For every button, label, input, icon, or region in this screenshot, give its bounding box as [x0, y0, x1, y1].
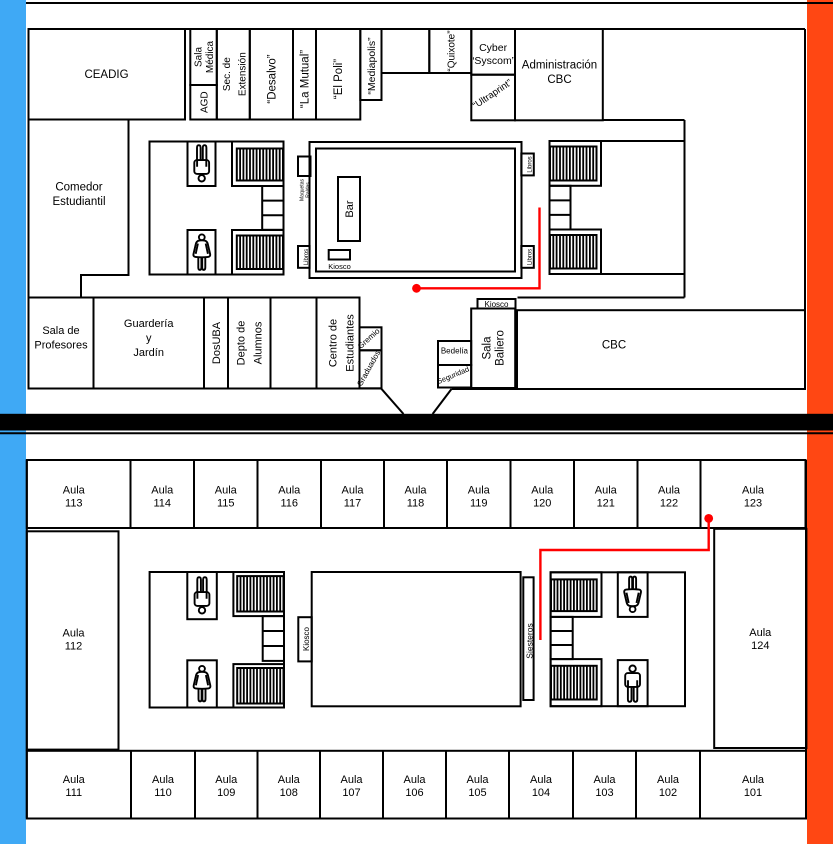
svg-text:“Syscom”: “Syscom”	[471, 55, 516, 67]
svg-text:104: 104	[532, 787, 550, 799]
svg-text:Aula: Aula	[657, 774, 680, 786]
svg-text:Estudiantes: Estudiantes	[345, 314, 357, 372]
svg-text:Aula: Aula	[63, 774, 86, 786]
svg-text:CBC: CBC	[547, 74, 571, 86]
svg-text:108: 108	[280, 787, 298, 799]
svg-text:Aula: Aula	[530, 774, 553, 786]
svg-text:124: 124	[751, 640, 769, 652]
svg-text:Cyber: Cyber	[479, 42, 508, 54]
svg-text:Aula: Aula	[403, 774, 426, 786]
svg-text:101: 101	[744, 787, 762, 799]
svg-text:Guardería: Guardería	[124, 318, 174, 330]
svg-text:Aula: Aula	[151, 484, 174, 496]
svg-text:“Desalvo”: “Desalvo”	[266, 54, 278, 103]
svg-text:Alumnos: Alumnos	[253, 321, 265, 364]
svg-text:DosUBA: DosUBA	[211, 321, 223, 364]
svg-text:“La Mutual”: “La Mutual”	[300, 50, 312, 108]
svg-text:“Quixote”: “Quixote”	[446, 30, 457, 71]
svg-text:110: 110	[154, 787, 172, 799]
svg-text:106: 106	[405, 787, 423, 799]
svg-text:Sala: Sala	[482, 336, 494, 360]
svg-text:113: 113	[65, 497, 83, 509]
svg-text:Aula: Aula	[340, 774, 363, 786]
svg-text:Aula: Aula	[62, 628, 85, 640]
svg-text:Baliero: Baliero	[495, 330, 507, 366]
svg-text:Aula: Aula	[63, 484, 86, 496]
svg-text:116: 116	[280, 497, 298, 509]
svg-text:Libros: Libros	[304, 249, 310, 265]
svg-text:Centro de: Centro de	[328, 319, 340, 367]
svg-text:CBC: CBC	[602, 340, 626, 352]
svg-text:CEADIG: CEADIG	[84, 69, 128, 81]
svg-text:107: 107	[342, 787, 360, 799]
svg-text:AGD: AGD	[200, 91, 211, 113]
svg-text:Depto de: Depto de	[236, 321, 248, 366]
svg-text:123: 123	[744, 497, 762, 509]
svg-text:114: 114	[153, 497, 171, 509]
svg-text:Libros: Libros	[528, 156, 534, 172]
svg-text:Médica: Médica	[205, 40, 216, 73]
svg-text:109: 109	[217, 787, 235, 799]
svg-text:Aula: Aula	[215, 774, 238, 786]
svg-text:Aula: Aula	[215, 484, 238, 496]
svg-text:105: 105	[468, 787, 486, 799]
svg-text:121: 121	[597, 497, 615, 509]
svg-text:Aula: Aula	[278, 774, 301, 786]
svg-text:Libros: Libros	[528, 249, 534, 265]
svg-text:Aula: Aula	[468, 484, 491, 496]
svg-text:122: 122	[660, 497, 678, 509]
svg-text:Aula: Aula	[404, 484, 427, 496]
svg-text:117: 117	[344, 497, 362, 509]
svg-text:Aula: Aula	[466, 774, 489, 786]
svg-text:Aula: Aula	[278, 484, 301, 496]
svg-text:111: 111	[65, 787, 82, 799]
svg-text:Kiosco: Kiosco	[302, 626, 311, 651]
svg-text:“Mediapolis”: “Mediapolis”	[366, 37, 378, 95]
svg-text:Aula: Aula	[152, 774, 175, 786]
svg-text:118: 118	[407, 497, 425, 509]
svg-text:103: 103	[595, 787, 613, 799]
svg-text:Bedelía: Bedelía	[441, 347, 469, 356]
svg-text:Aula: Aula	[742, 774, 765, 786]
svg-text:112: 112	[65, 641, 83, 653]
svg-text:Aula: Aula	[749, 627, 772, 639]
svg-text:Aula: Aula	[595, 484, 618, 496]
svg-text:Administración: Administración	[522, 60, 597, 72]
svg-text:Siesteros: Siesteros	[524, 623, 534, 658]
svg-text:Jardín: Jardín	[133, 347, 164, 359]
svg-text:Raldas: Raldas	[305, 182, 311, 198]
svg-text:Estudiantil: Estudiantil	[52, 196, 105, 208]
svg-text:Aula: Aula	[658, 484, 681, 496]
svg-text:“El Poli”: “El Poli”	[333, 59, 345, 99]
svg-text:y: y	[146, 333, 152, 345]
svg-text:Sec. de: Sec. de	[222, 57, 233, 91]
svg-text:Aula: Aula	[341, 484, 364, 496]
svg-text:Aula: Aula	[531, 484, 554, 496]
svg-text:Aula: Aula	[593, 774, 616, 786]
svg-text:Sala de: Sala de	[42, 325, 79, 337]
svg-text:Bar: Bar	[344, 200, 356, 217]
svg-text:Comedor: Comedor	[55, 182, 102, 194]
svg-text:Sala: Sala	[194, 47, 205, 67]
svg-text:119: 119	[470, 497, 488, 509]
svg-text:Aula: Aula	[742, 484, 765, 496]
svg-text:Profesores: Profesores	[34, 340, 88, 352]
svg-text:102: 102	[659, 787, 677, 799]
svg-text:115: 115	[217, 497, 235, 509]
svg-text:Extensión: Extensión	[237, 52, 248, 96]
svg-text:120: 120	[533, 497, 551, 509]
svg-text:Kiosco: Kiosco	[328, 262, 351, 271]
